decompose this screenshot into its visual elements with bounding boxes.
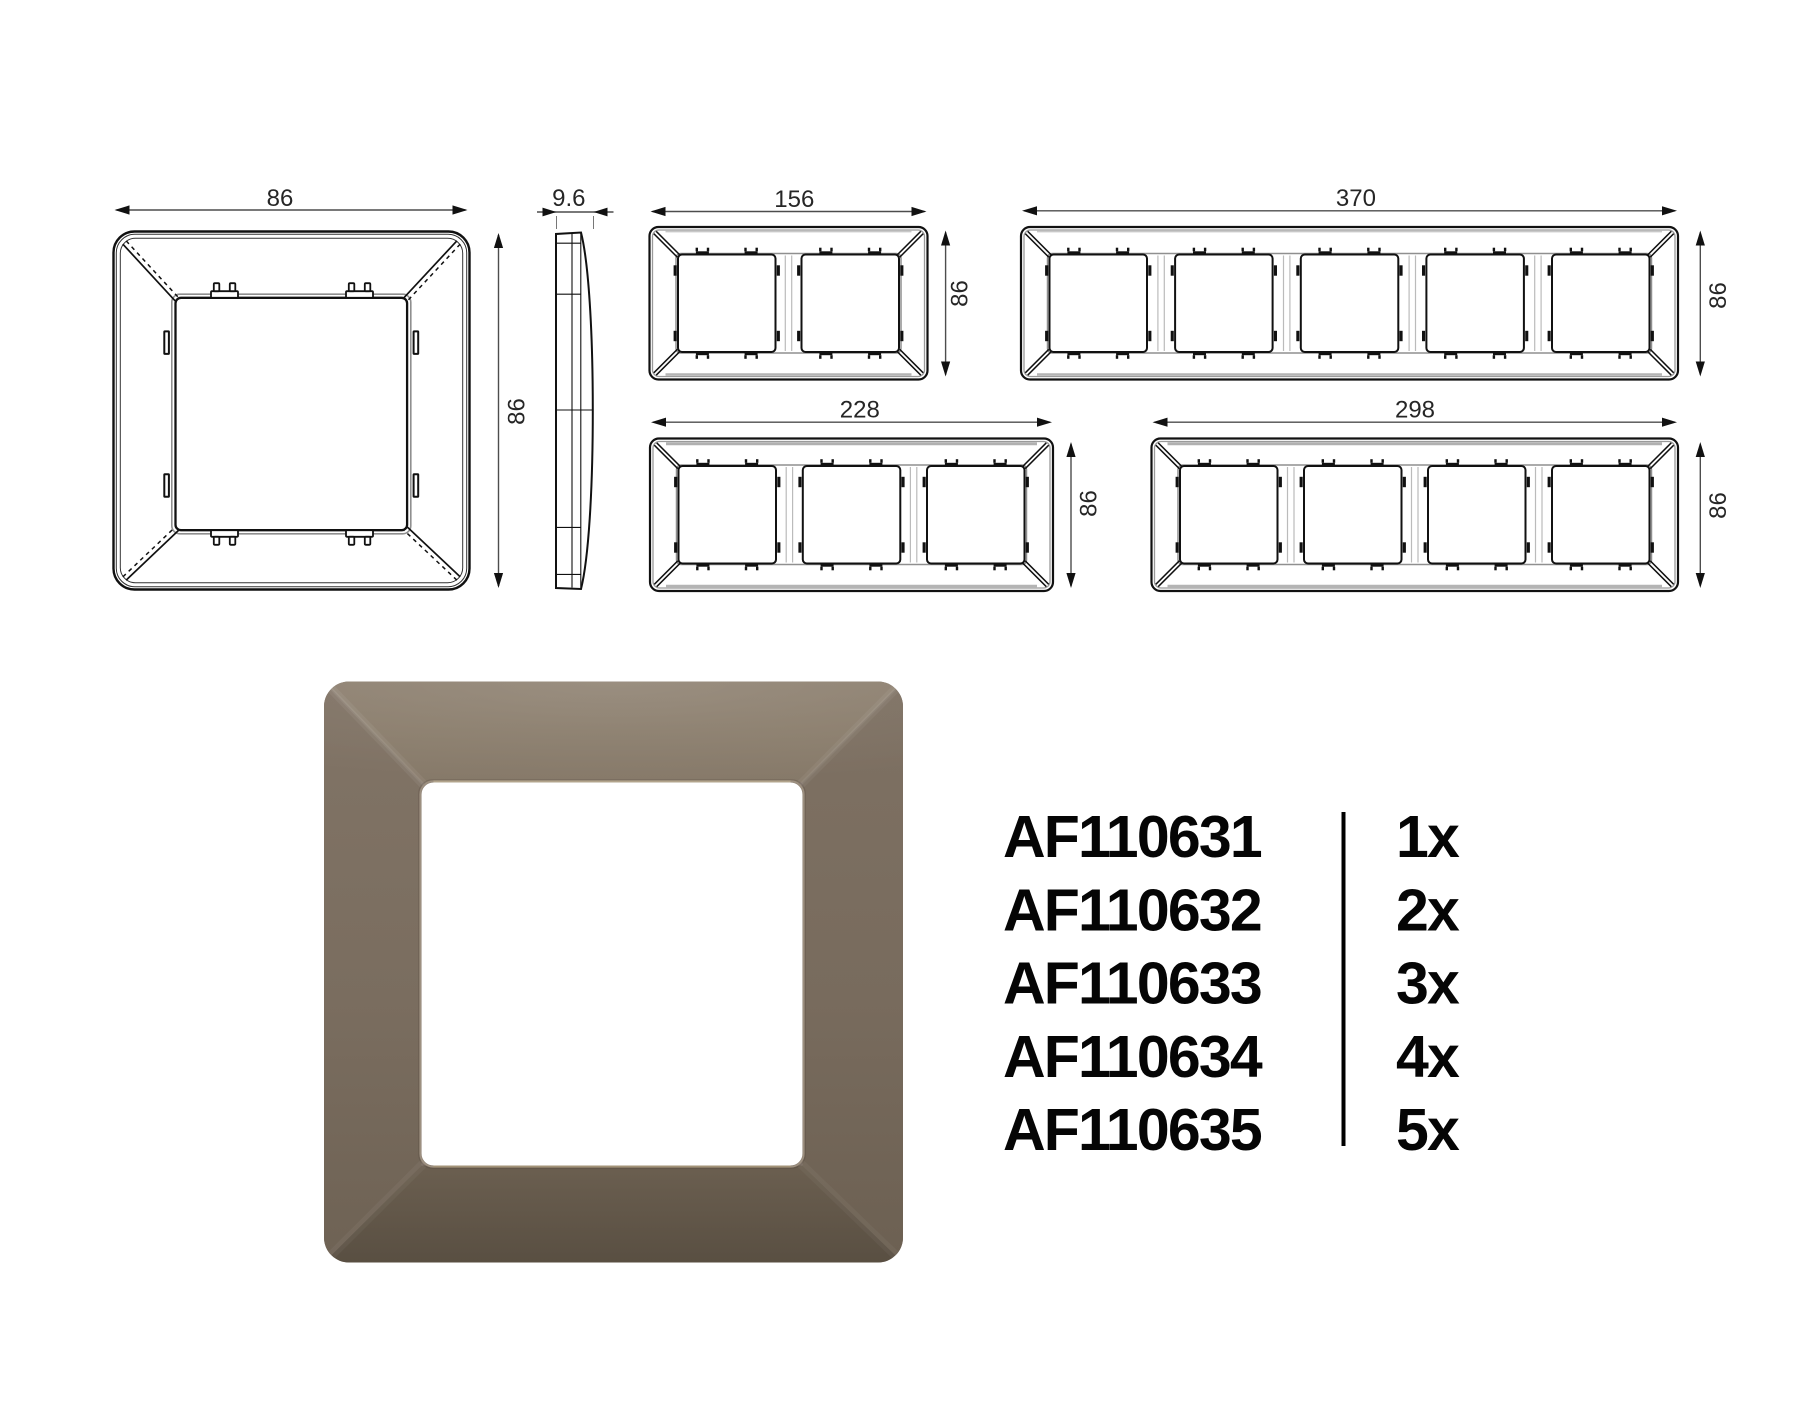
svg-text:86: 86 [1705, 282, 1732, 309]
svg-text:1x: 1x [1396, 804, 1460, 870]
svg-text:298: 298 [1395, 397, 1435, 424]
svg-text:AF110635: AF110635 [1003, 1097, 1262, 1163]
svg-text:370: 370 [1336, 185, 1376, 212]
svg-text:86: 86 [504, 398, 531, 425]
svg-text:86: 86 [1076, 490, 1103, 517]
svg-text:9.6: 9.6 [552, 185, 585, 212]
svg-text:4x: 4x [1396, 1024, 1460, 1090]
svg-text:228: 228 [840, 397, 880, 424]
svg-text:86: 86 [947, 280, 974, 307]
svg-text:5x: 5x [1396, 1097, 1460, 1163]
svg-text:156: 156 [774, 186, 814, 213]
svg-text:2x: 2x [1396, 878, 1460, 944]
svg-text:86: 86 [1705, 492, 1732, 519]
svg-text:AF110631: AF110631 [1003, 804, 1262, 870]
svg-text:86: 86 [267, 185, 294, 212]
svg-text:AF110634: AF110634 [1003, 1024, 1263, 1090]
svg-text:3x: 3x [1396, 951, 1460, 1017]
svg-text:AF110632: AF110632 [1003, 878, 1261, 944]
svg-text:AF110633: AF110633 [1003, 951, 1261, 1017]
